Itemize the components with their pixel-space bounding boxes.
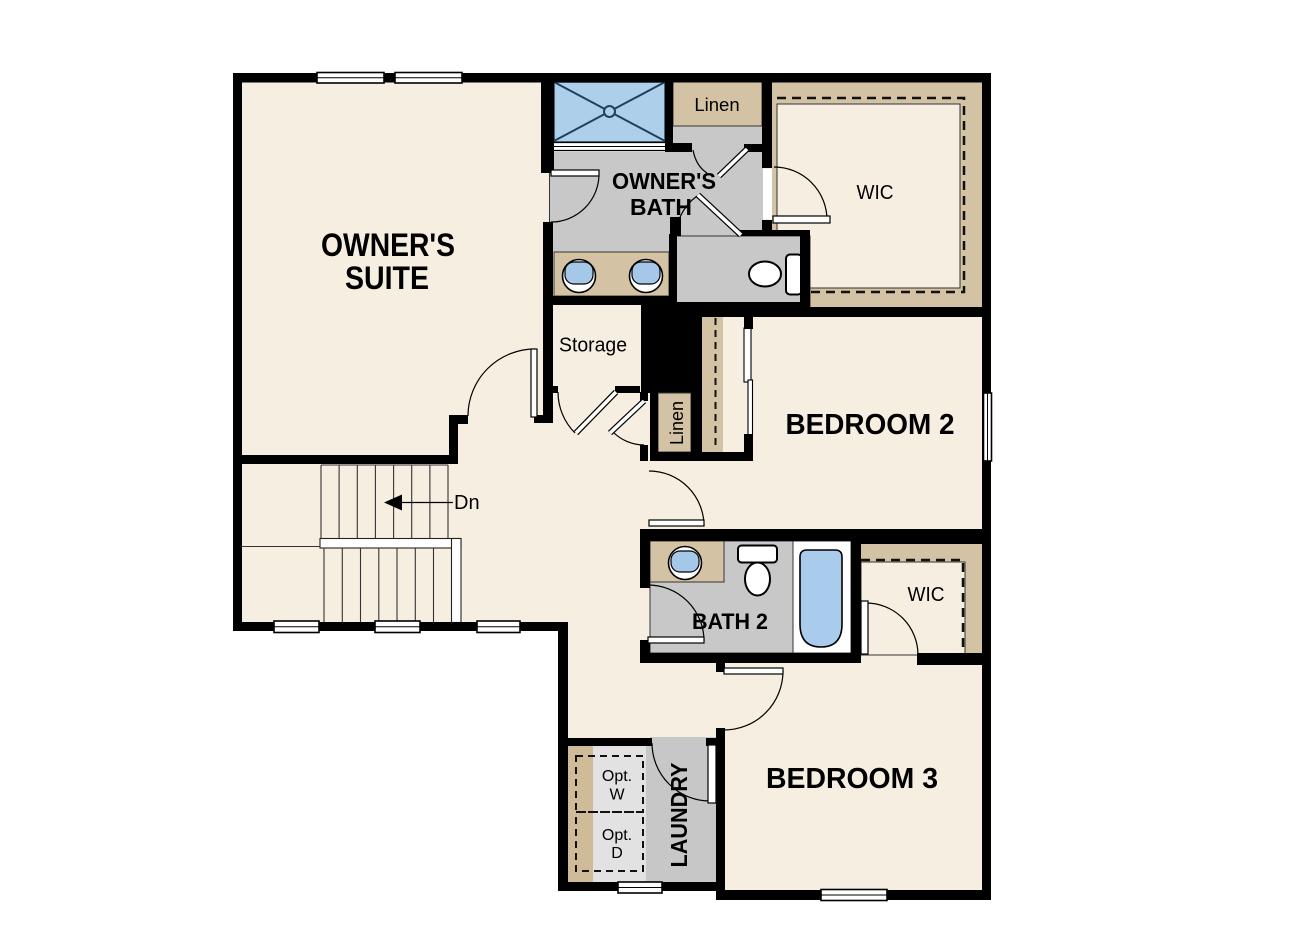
svg-text:Opt.: Opt. (602, 768, 632, 785)
svg-text:BATH: BATH (630, 194, 692, 220)
svg-text:WIC: WIC (857, 181, 894, 204)
svg-text:LAUNDRY: LAUNDRY (666, 763, 692, 868)
svg-text:OWNER'S: OWNER'S (321, 227, 455, 263)
svg-text:Linen: Linen (694, 94, 739, 115)
svg-text:Opt.: Opt. (602, 827, 632, 844)
svg-text:BEDROOM 2: BEDROOM 2 (786, 409, 955, 441)
svg-text:BEDROOM 3: BEDROOM 3 (766, 763, 938, 795)
svg-text:Linen: Linen (667, 401, 687, 445)
svg-text:W: W (609, 787, 625, 804)
svg-text:SUITE: SUITE (345, 260, 429, 296)
svg-text:D: D (611, 845, 623, 862)
svg-text:Dn: Dn (454, 492, 480, 514)
svg-text:WIC: WIC (908, 583, 945, 606)
svg-text:OWNER'S: OWNER'S (612, 168, 716, 194)
svg-text:Storage: Storage (559, 334, 627, 357)
svg-text:BATH 2: BATH 2 (692, 609, 768, 634)
